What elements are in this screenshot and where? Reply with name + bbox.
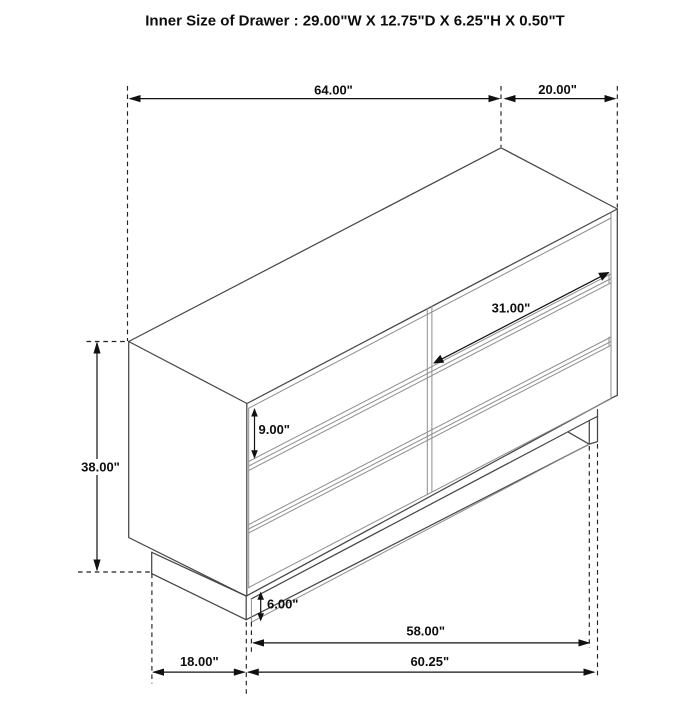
svg-text:Inner Size of Drawer : 29.00"W: Inner Size of Drawer : 29.00"W X 12.75"D… [145,13,564,30]
svg-text:6.00": 6.00" [267,596,298,611]
svg-text:58.00": 58.00" [406,624,445,639]
svg-text:20.00": 20.00" [538,82,577,97]
svg-text:60.25": 60.25" [410,654,449,669]
svg-text:31.00": 31.00" [492,301,531,316]
svg-text:38.00": 38.00" [81,460,120,475]
svg-text:18.00": 18.00" [180,654,219,669]
svg-text:64.00": 64.00" [314,83,353,98]
svg-text:9.00": 9.00" [259,422,290,437]
